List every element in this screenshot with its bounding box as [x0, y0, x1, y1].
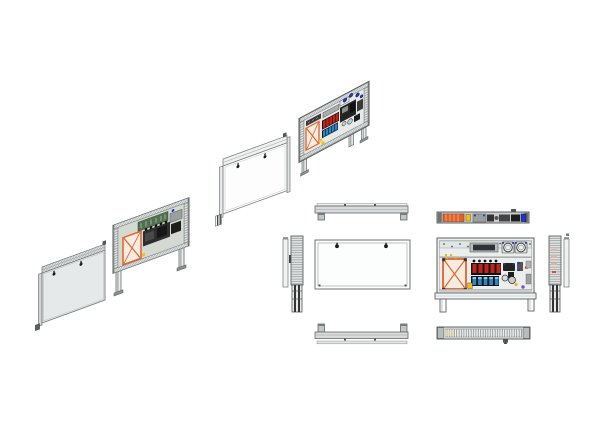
- mid-divider: [440, 257, 532, 258]
- yellow-block-top: [466, 215, 471, 222]
- transformer-front: [442, 257, 467, 291]
- right-rail: [364, 83, 368, 127]
- ortho-bottom-door: [315, 324, 408, 344]
- door-edge-thickness: [220, 166, 224, 218]
- right-rail: [184, 199, 188, 246]
- door-top-feet: [318, 213, 407, 220]
- door-edge-view: [564, 239, 569, 287]
- ortho-front-open: [435, 238, 536, 312]
- ortho-front-door: [315, 240, 410, 289]
- ortho-top-open: [437, 209, 529, 223]
- iso-door-middle: [216, 131, 291, 226]
- iso-door-far-left: [35, 240, 106, 331]
- ortho-bottom-open: [437, 327, 530, 344]
- terminal-row-front: [471, 276, 499, 286]
- left-rail: [114, 225, 118, 272]
- drawing-canvas: [0, 0, 600, 425]
- bottom-tab: [503, 339, 508, 343]
- door-front-face: [315, 240, 410, 289]
- component-stack-edge: [291, 236, 303, 285]
- left-rail: [300, 117, 304, 161]
- iso-open-left: [113, 198, 189, 297]
- door-edge-view: [283, 239, 288, 287]
- controller-screen: [473, 245, 495, 251]
- ortho-side-left: [283, 236, 303, 312]
- door-foot: [216, 214, 222, 226]
- ortho-side-right: [549, 234, 569, 313]
- vent-grille: [445, 329, 522, 337]
- door-foot: [35, 323, 40, 331]
- door-edge-bar: [287, 137, 290, 193]
- cad-drawing: [0, 0, 600, 425]
- iso-open-upper: [299, 81, 369, 177]
- leg-side: [550, 285, 560, 312]
- component-stack-edge: [549, 236, 561, 285]
- ortho-top-door: [315, 204, 408, 221]
- yellow-block-front: [468, 283, 473, 289]
- door-edge-thickness: [39, 273, 43, 326]
- bottom-shelf: [440, 289, 532, 291]
- blue-block-top: [521, 214, 526, 222]
- chassis-legs-front: [440, 299, 534, 312]
- hinge-cap: [103, 240, 107, 245]
- door-bottom-feet: [318, 324, 407, 332]
- leg-side: [292, 285, 302, 312]
